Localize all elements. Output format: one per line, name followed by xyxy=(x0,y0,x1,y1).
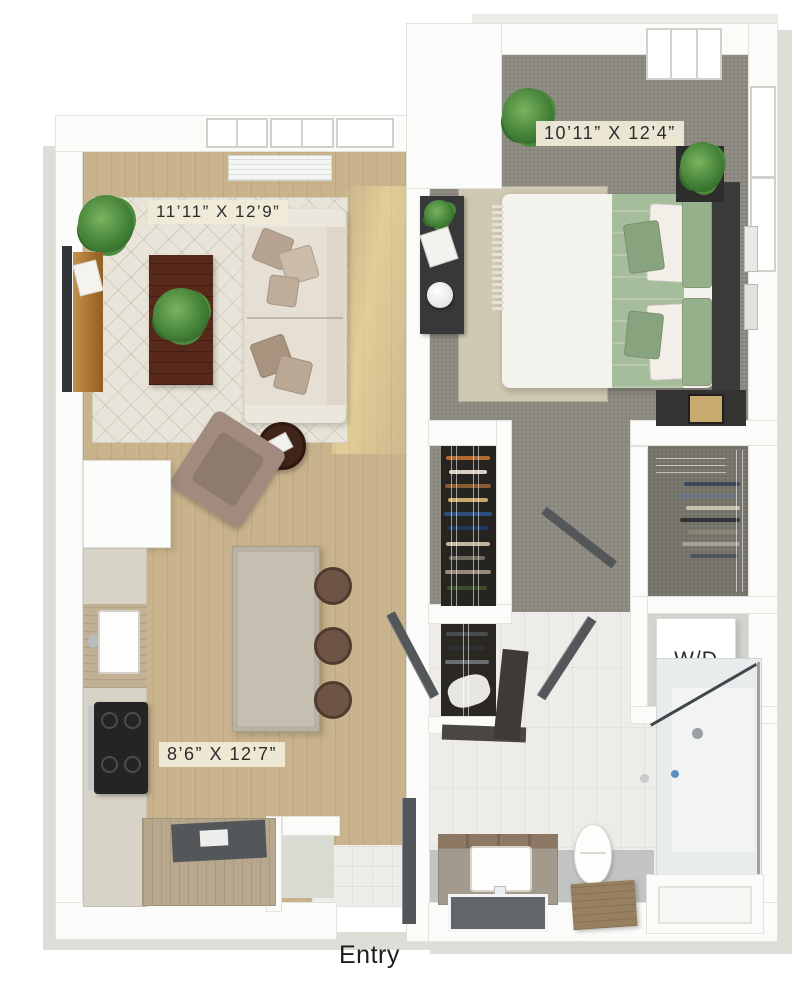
closet-wire-shelf xyxy=(468,624,469,716)
clothes-item xyxy=(446,456,490,460)
closet-wire-shelf xyxy=(473,446,474,606)
closet-wire-shelf xyxy=(451,446,452,606)
entry-label-text: Entry xyxy=(339,941,400,969)
wall-art-frame xyxy=(744,284,758,330)
clothes-item xyxy=(682,542,740,546)
entry-nook-wall-top xyxy=(282,816,340,836)
window-mullion xyxy=(236,120,238,146)
stove-burner xyxy=(101,712,118,729)
bar-stool xyxy=(314,627,352,665)
bedroom-top-window xyxy=(646,28,722,80)
wall-bottom-left xyxy=(55,902,337,940)
closet-wire-shelf xyxy=(478,446,479,606)
window-mullion xyxy=(301,120,303,146)
living-window-3 xyxy=(336,118,394,148)
coffee-table-plant xyxy=(153,288,209,342)
vanity-mirror xyxy=(448,894,548,932)
kitchen-sink xyxy=(98,610,140,674)
wall-closet1-right xyxy=(496,420,512,622)
clothes-item xyxy=(446,632,488,636)
dresser-art xyxy=(688,394,724,424)
entry-nook-floor xyxy=(282,836,334,898)
walk-in-closet-interior xyxy=(648,446,748,596)
bar-stool xyxy=(314,681,352,719)
clothes-item xyxy=(686,506,740,510)
entry-label: Entry xyxy=(339,941,400,970)
shower-half-wall-panel xyxy=(658,886,752,924)
closet-wire-shelf xyxy=(656,458,726,459)
window-mullion xyxy=(752,176,774,179)
closet-wire-shelf xyxy=(656,472,726,473)
sofa-pillow xyxy=(266,274,300,308)
closet-wire-shelf xyxy=(736,450,737,592)
sofa-seat-seam xyxy=(247,317,343,319)
desk-plant xyxy=(424,200,454,228)
bed-throw-pillow xyxy=(623,220,666,275)
shower-control xyxy=(671,770,679,778)
stove-handle xyxy=(88,706,93,790)
clothes-item xyxy=(449,646,485,650)
clothes-item xyxy=(684,482,740,486)
nightstand-plant xyxy=(680,142,724,192)
floor-plan: W/D 11’11” X 12’9” 10’11” X 12’4” 8’6” X… xyxy=(0,0,796,1000)
clothes-item xyxy=(449,556,485,560)
bed-pillow-green xyxy=(682,298,712,386)
shower-door-handle xyxy=(640,774,649,783)
bar-stool xyxy=(314,567,352,605)
bed-pillow-green xyxy=(682,198,712,288)
wall-corner-mass xyxy=(406,23,502,189)
closet-wire-shelf xyxy=(456,446,457,606)
closet-wire-shelf xyxy=(742,450,743,592)
clothes-item xyxy=(446,542,490,546)
wall-left-exterior xyxy=(55,115,83,940)
clothes-item xyxy=(448,498,488,502)
table-lamp xyxy=(427,282,453,308)
shower-glass-edge xyxy=(757,662,760,878)
bathroom-stool xyxy=(570,880,637,930)
wall-wd-top xyxy=(630,596,778,614)
living-room-dimensions-label: 11’11” X 12’9” xyxy=(148,200,288,224)
clothes-item xyxy=(688,530,738,534)
window-mullion xyxy=(696,30,698,78)
bed-throw-pillow xyxy=(624,310,665,360)
toilet-seat-line xyxy=(580,852,606,854)
stove-burner xyxy=(124,712,141,729)
bedroom-dimensions-label: 10’11” X 12’4” xyxy=(536,121,684,146)
wall-wd-left xyxy=(630,596,648,724)
living-room-dimensions-text: 11’11” X 12’9” xyxy=(156,202,280,221)
exterior-face-bottom-right xyxy=(430,940,792,954)
stored-bag xyxy=(444,670,493,712)
kitchen-island-top xyxy=(238,552,314,726)
baseboard-heater xyxy=(228,155,332,181)
closet-interior xyxy=(441,446,496,606)
wall-closet-right-left xyxy=(630,446,648,604)
clothes-item xyxy=(684,566,738,570)
clothes-item xyxy=(690,554,738,558)
wall-closet-mid xyxy=(428,604,512,624)
sofa-armrest xyxy=(245,405,345,423)
entry-open-door xyxy=(402,798,416,924)
window-mullion xyxy=(670,30,672,78)
potted-plant xyxy=(78,195,134,253)
bedroom-dimensions-text: 10’11” X 12’4” xyxy=(544,123,676,143)
clothes-item xyxy=(449,470,487,474)
kitchen-dimensions-text: 8’6” X 12’7” xyxy=(167,744,277,764)
tv xyxy=(62,246,72,392)
closet-interior xyxy=(441,624,496,716)
toilet xyxy=(574,824,612,884)
bed-fringe-throw xyxy=(492,202,504,310)
tray-item xyxy=(200,829,229,846)
closet-wire-shelf xyxy=(656,465,726,466)
clothes-item xyxy=(680,518,740,522)
clothes-item xyxy=(678,494,740,498)
wall-art-frame xyxy=(744,226,758,272)
shower-head xyxy=(692,728,703,739)
sofa-back xyxy=(327,211,345,421)
stove-burner xyxy=(124,756,141,773)
refrigerator xyxy=(83,460,171,548)
kitchen-faucet xyxy=(88,634,98,648)
bed-headboard xyxy=(712,182,740,400)
clothes-item xyxy=(447,526,489,530)
exterior-face-right xyxy=(776,30,792,948)
clothes-item xyxy=(447,586,487,590)
wall-bedroom-top xyxy=(470,23,778,55)
stove-burner xyxy=(101,756,118,773)
kitchen-dimensions-label: 8’6” X 12’7” xyxy=(159,742,285,767)
clothes-item xyxy=(445,660,489,664)
closet-wire-shelf xyxy=(463,624,464,716)
shower-floor xyxy=(672,688,754,852)
